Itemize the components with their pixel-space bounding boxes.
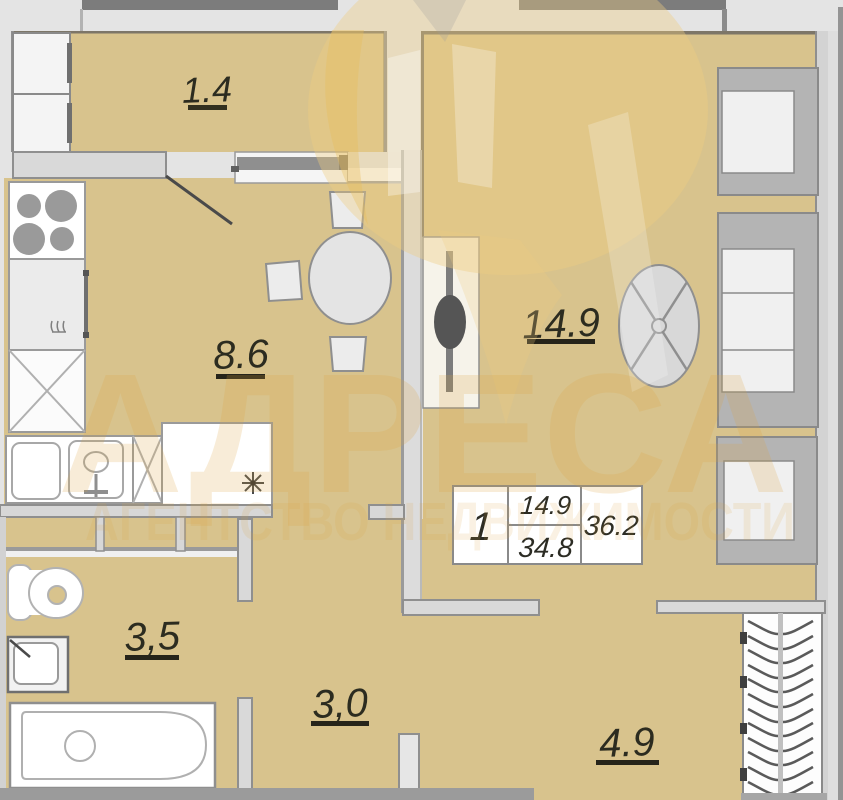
svg-text:1.4: 1.4 bbox=[181, 68, 232, 111]
svg-text:4.9: 4.9 bbox=[598, 720, 655, 766]
svg-text:АГЕНТСТВО НЕДВИЖИМОСТИ: АГЕНТСТВО НЕДВИЖИМОСТИ bbox=[85, 492, 795, 552]
svg-text:3,0: 3,0 bbox=[311, 681, 368, 727]
svg-text:3,5: 3,5 bbox=[124, 614, 182, 660]
